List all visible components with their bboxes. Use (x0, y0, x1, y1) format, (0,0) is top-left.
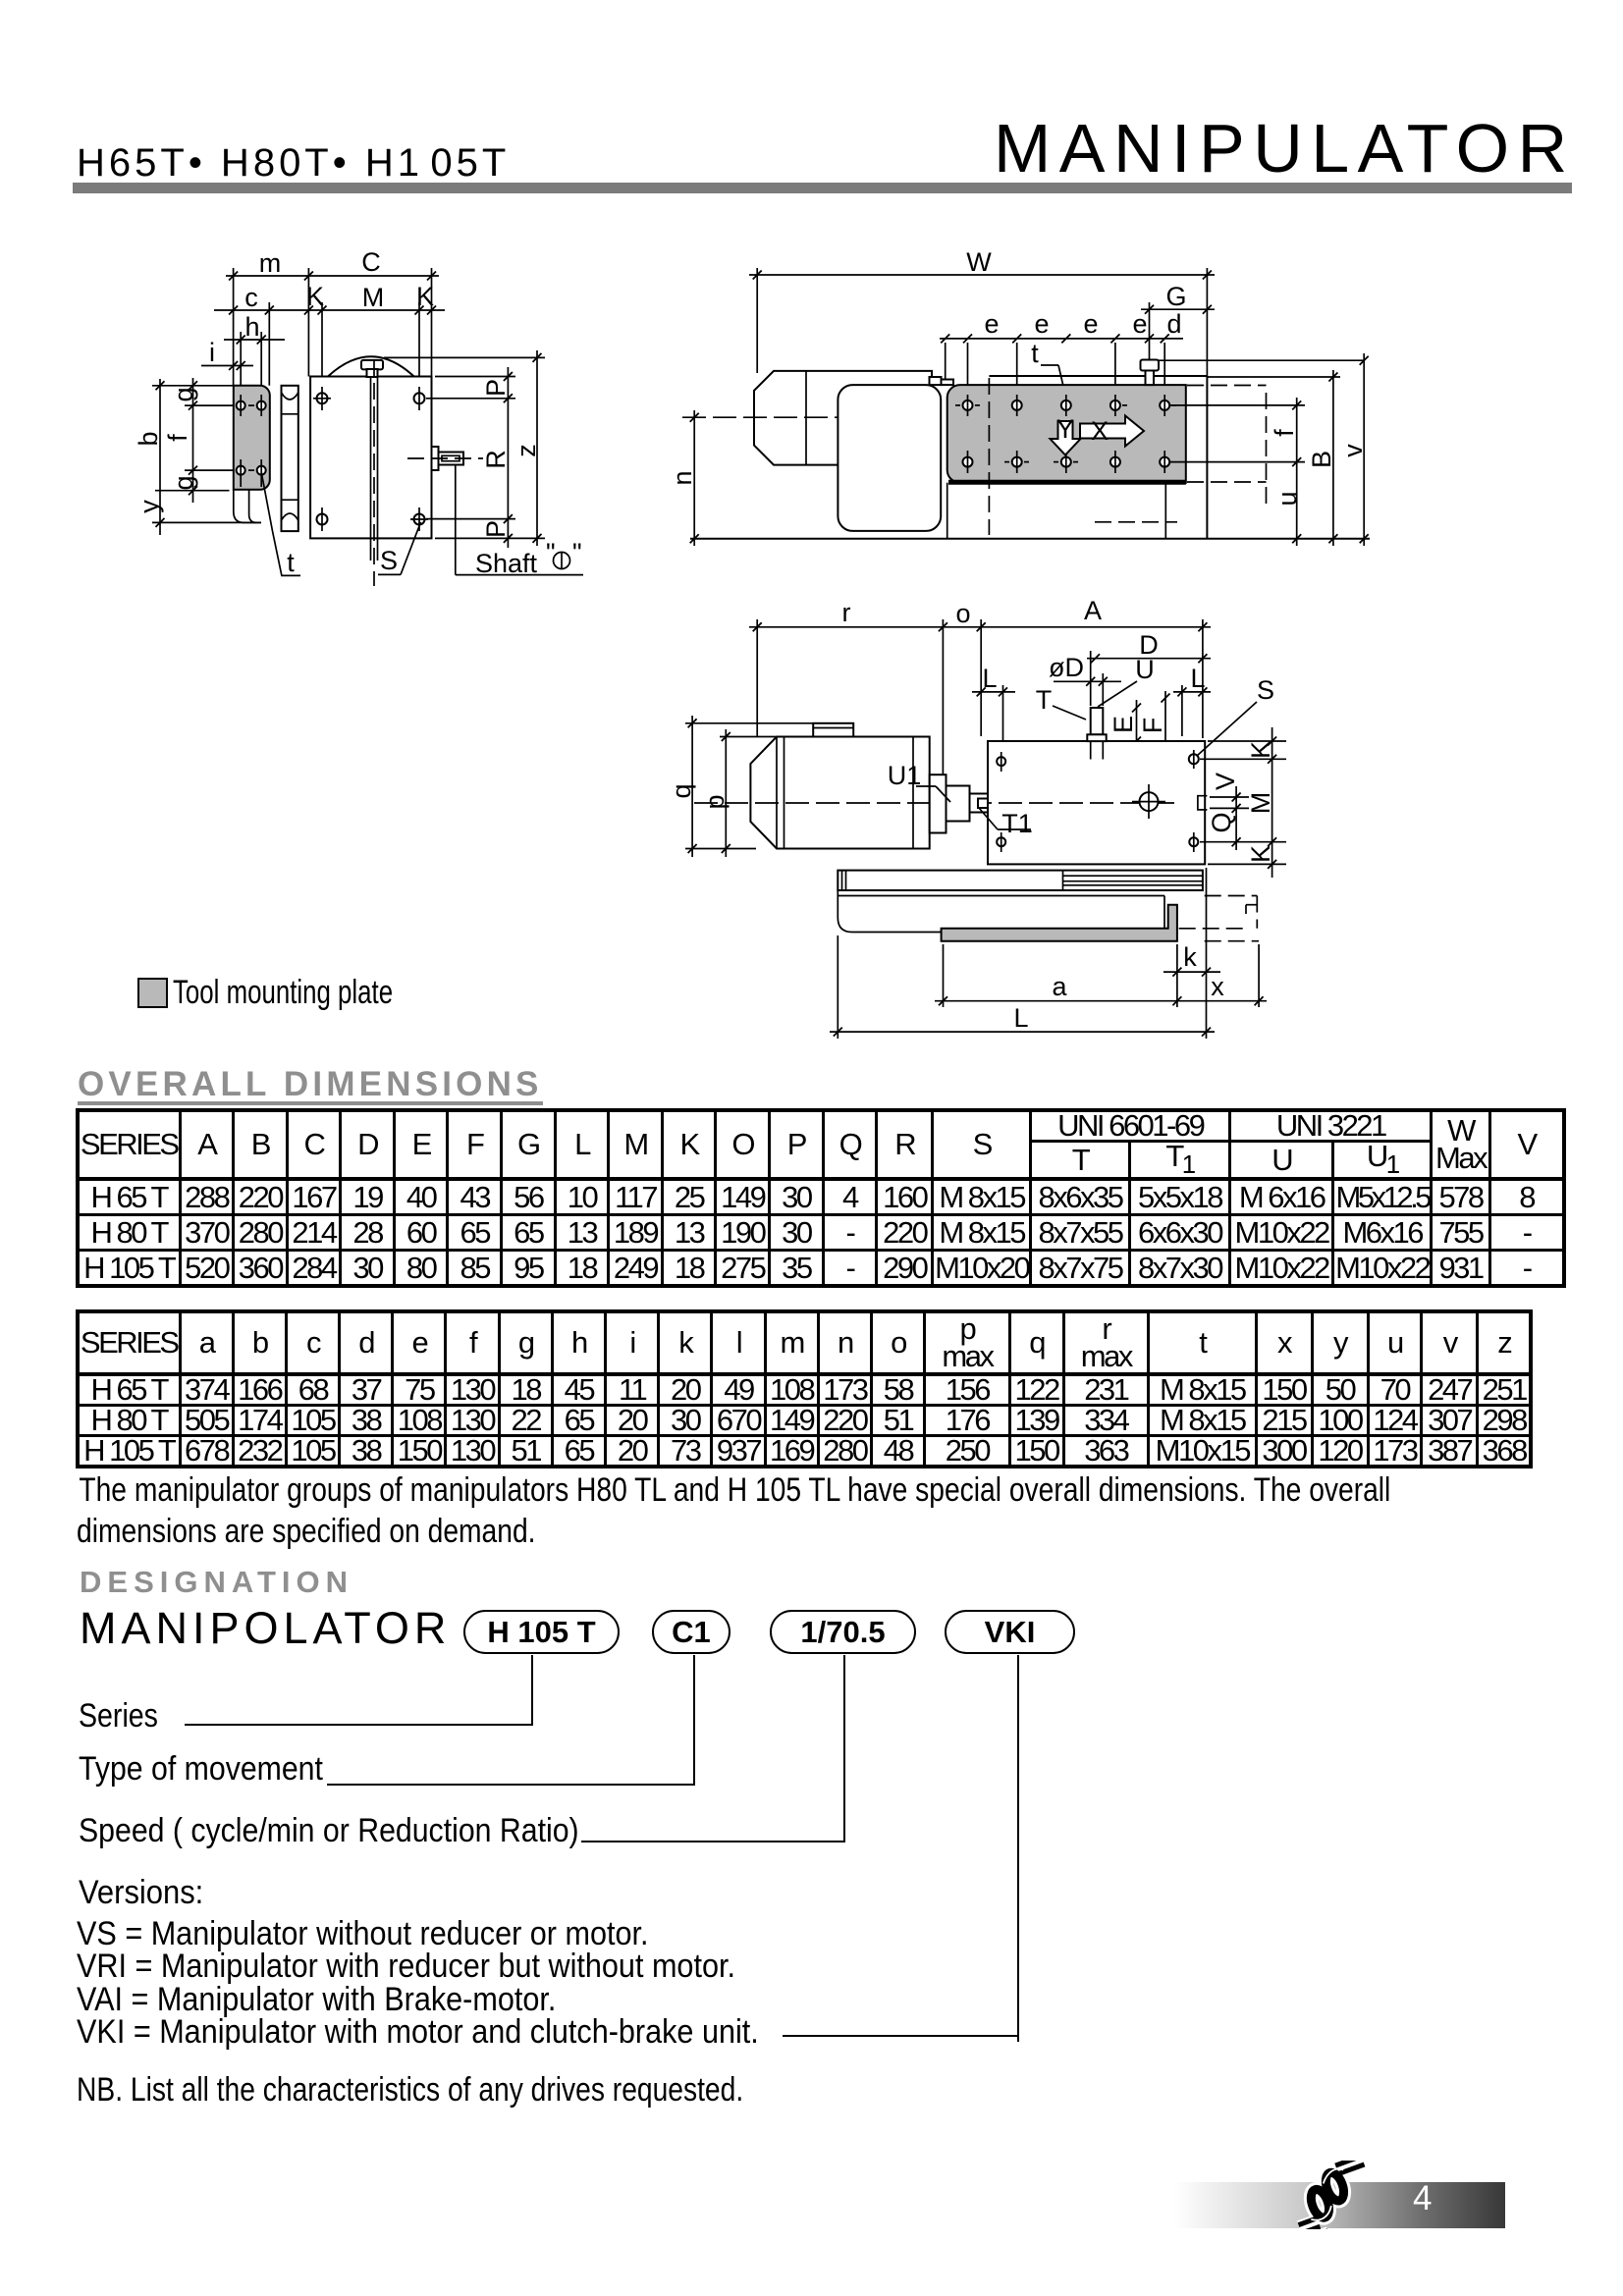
svg-text:c: c (244, 283, 258, 312)
svg-text:e: e (984, 309, 999, 339)
svg-text:g: g (169, 387, 198, 401)
svg-text:k: k (1183, 942, 1197, 972)
svg-text:y: y (135, 500, 164, 513)
svg-text:S: S (1257, 675, 1274, 705)
svg-text:P: P (481, 520, 511, 538)
svg-text:i: i (209, 338, 215, 367)
svg-text:m: m (259, 248, 282, 278)
svg-text:e: e (1132, 309, 1147, 339)
svg-text:h: h (244, 312, 259, 342)
svg-text:R: R (481, 450, 511, 469)
svg-text:q: q (667, 783, 696, 798)
svg-text:A: A (1084, 596, 1102, 625)
svg-text:t: t (287, 548, 295, 577)
svg-text:C: C (361, 247, 381, 277)
svg-text:M: M (1246, 792, 1275, 815)
svg-text:P: P (481, 379, 511, 397)
svg-text:øD: øD (1049, 653, 1084, 682)
svg-text:S: S (380, 546, 398, 575)
svg-text:g: g (169, 475, 198, 490)
svg-text:V: V (1211, 773, 1240, 790)
svg-text:v: v (1338, 444, 1368, 457)
svg-text:r: r (842, 598, 851, 627)
svg-text:L: L (1013, 1003, 1028, 1033)
svg-text:e: e (1034, 309, 1049, 339)
svg-text:F: F (1138, 718, 1167, 734)
svg-text:b: b (134, 431, 163, 446)
svg-text:z: z (512, 444, 541, 457)
svg-text:K: K (1246, 741, 1275, 759)
svg-text:K: K (1246, 845, 1275, 863)
svg-text:o: o (955, 599, 970, 628)
svg-text:T: T (1036, 685, 1053, 715)
svg-text:G: G (1165, 282, 1186, 311)
svg-text:": " (572, 538, 582, 567)
svg-text:d: d (1166, 309, 1181, 339)
svg-text:a: a (1052, 972, 1067, 1001)
svg-text:L: L (1190, 664, 1205, 693)
svg-text:X: X (1091, 416, 1109, 446)
svg-text:p: p (700, 794, 730, 809)
svg-text:B: B (1307, 451, 1336, 468)
svg-text:Shaft: Shaft (475, 549, 538, 578)
svg-text:W: W (966, 247, 992, 277)
svg-text:Y: Y (1056, 414, 1074, 444)
svg-text:M: M (362, 283, 385, 312)
svg-text:f: f (163, 434, 192, 442)
svg-text:f: f (1270, 429, 1299, 437)
svg-text:T1: T1 (1001, 809, 1033, 838)
svg-text:n: n (668, 470, 697, 485)
svg-text:u: u (1272, 491, 1302, 506)
svg-text:x: x (1211, 972, 1224, 1001)
svg-text:E: E (1109, 716, 1138, 733)
svg-text:Q: Q (1207, 812, 1236, 832)
svg-text:U: U (1135, 655, 1155, 684)
svg-text:t: t (1031, 339, 1039, 368)
svg-text:e: e (1083, 309, 1098, 339)
